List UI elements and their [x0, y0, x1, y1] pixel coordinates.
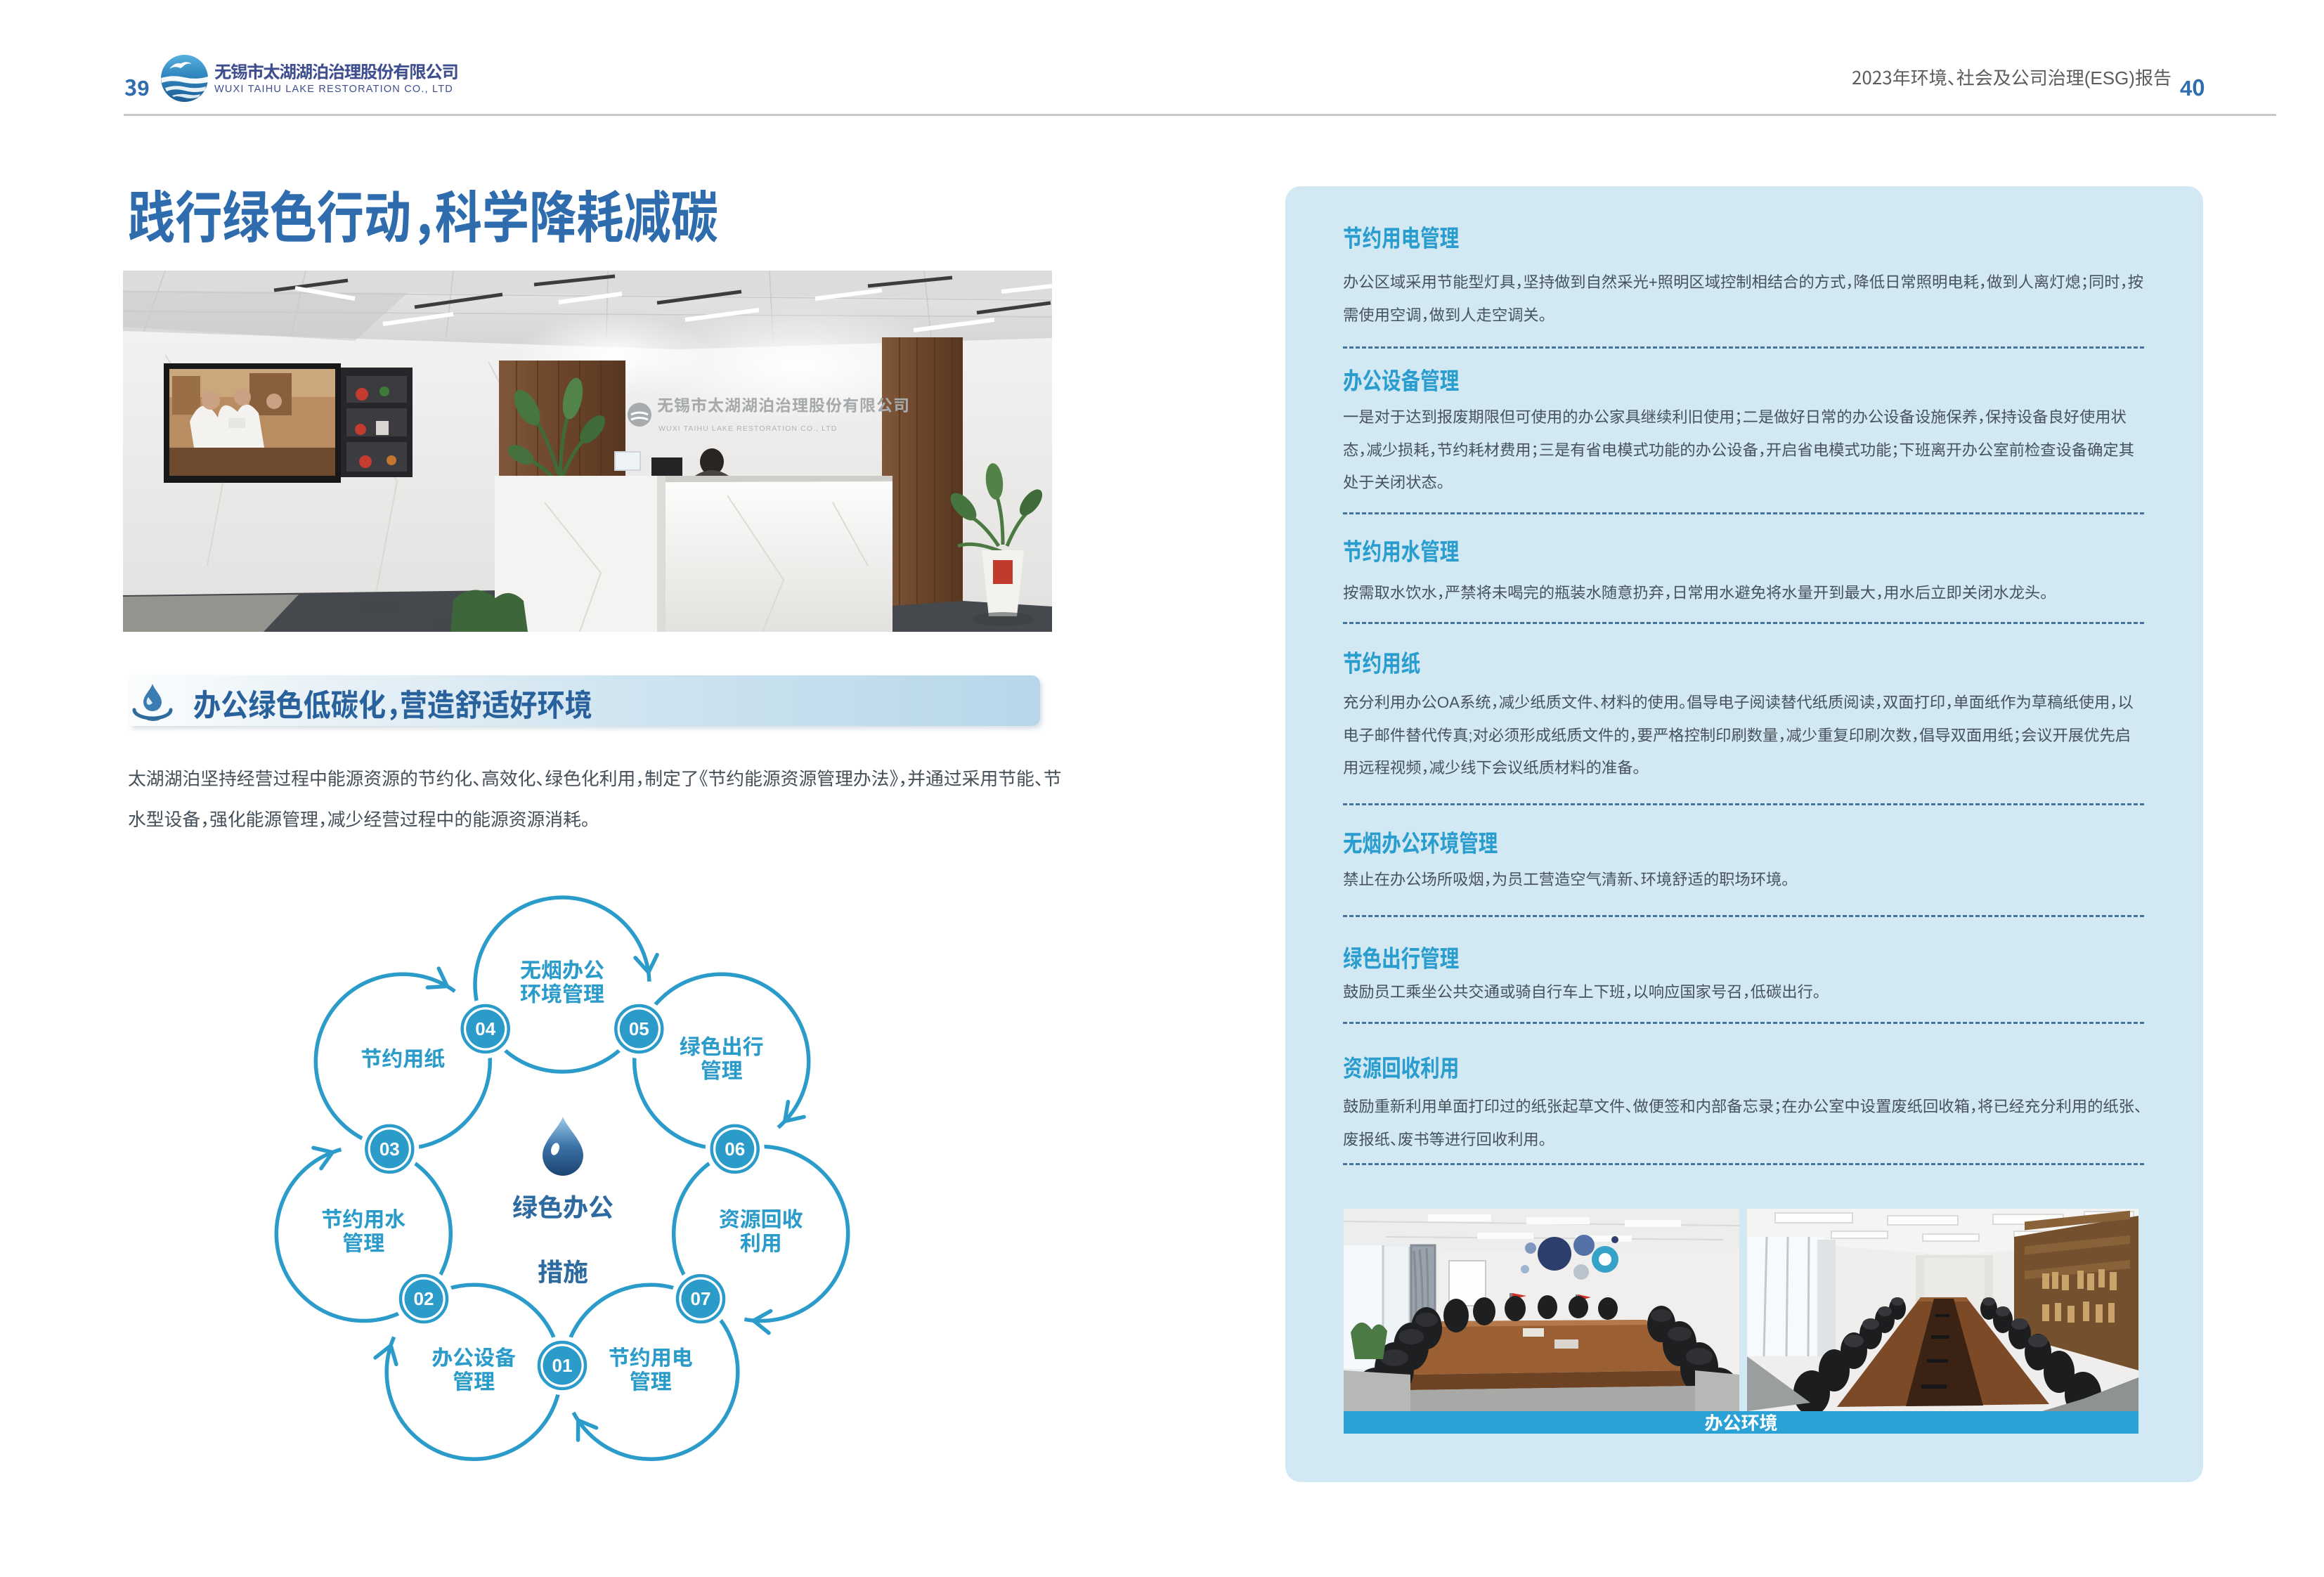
svg-text:06: 06 — [725, 1138, 745, 1160]
svg-text:绿色办公: 绿色办公 — [512, 1188, 614, 1224]
svg-text:01: 01 — [552, 1355, 573, 1376]
svg-text:管理: 管理 — [630, 1364, 672, 1395]
svg-text:管理: 管理 — [453, 1364, 495, 1395]
svg-text:节约用纸: 节约用纸 — [361, 1041, 445, 1072]
svg-text:05: 05 — [629, 1018, 649, 1039]
svg-text:管理: 管理 — [342, 1226, 384, 1257]
svg-text:WUXI TAIHU LAKE RESTORATION CO: WUXI TAIHU LAKE RESTORATION CO., LTD — [658, 424, 838, 433]
svg-text:环境管理: 环境管理 — [520, 977, 604, 1008]
svg-text:措施: 措施 — [538, 1252, 588, 1289]
svg-text:04: 04 — [475, 1018, 495, 1039]
svg-text:管理: 管理 — [701, 1053, 743, 1084]
svg-text:02: 02 — [414, 1288, 434, 1309]
svg-text:03: 03 — [379, 1138, 400, 1160]
svg-text:07: 07 — [691, 1288, 711, 1309]
svg-text:利用: 利用 — [740, 1226, 782, 1257]
svg-text:无锡市太湖湖泊治理股份有限公司: 无锡市太湖湖泊治理股份有限公司 — [657, 392, 910, 416]
